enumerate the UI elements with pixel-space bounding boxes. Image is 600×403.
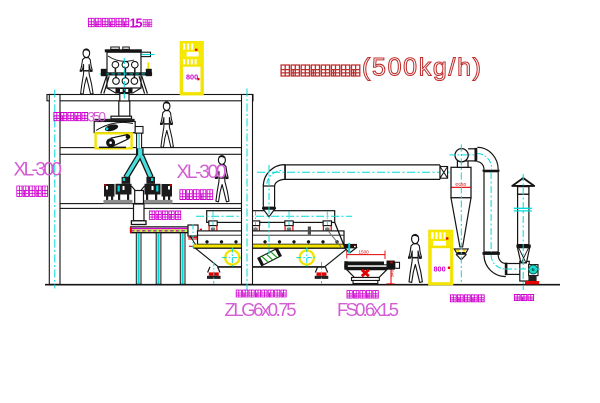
svg-text:800: 800 — [434, 264, 446, 273]
svg-text:XL-300: XL-300 — [14, 160, 63, 181]
svg-text:350: 350 — [88, 110, 107, 125]
svg-text:ZLG6x0.75: ZLG6x0.75 — [225, 299, 297, 320]
svg-text:(500kg/h): (500kg/h) — [362, 54, 481, 82]
svg-text:1.5: 1.5 — [130, 16, 143, 30]
svg-text:340: 340 — [389, 269, 394, 277]
svg-text:800: 800 — [186, 73, 198, 82]
svg-text:XL-300: XL-300 — [177, 162, 227, 183]
svg-text:1500: 1500 — [359, 249, 370, 254]
svg-text:FS0.6x1.5: FS0.6x1.5 — [337, 299, 399, 320]
